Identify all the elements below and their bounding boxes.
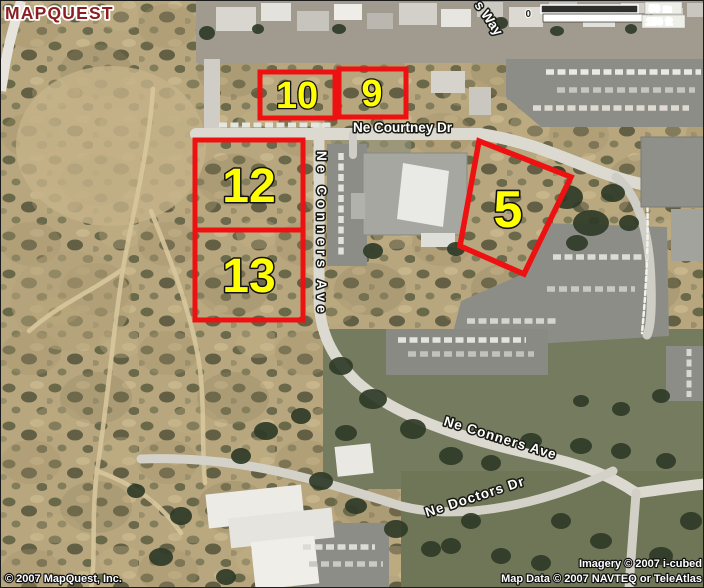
street-label-conners-vertical: Ne Conners Ave — [314, 151, 329, 317]
parcel-9-label: 9 — [361, 73, 382, 115]
mapquest-logo: MAPQUEST — [5, 3, 114, 23]
street-label-courtney: Ne Courtney Dr — [353, 120, 453, 135]
aerial-map-svg: 10 9 12 13 5 Ne Courtney Dr Ne Conners A… — [1, 1, 704, 588]
parcel-12-label: 12 — [222, 160, 275, 213]
parcel-13-label: 13 — [222, 250, 275, 303]
credit-map-data: Map Data © 2007 NAVTEQ or TeleAtlas — [501, 573, 702, 585]
scale-imperial-label: 150 ft — [646, 17, 673, 28]
credit-imagery: Imagery © 2007 i-cubed — [579, 558, 702, 570]
scale-bar-imperial — [543, 14, 647, 22]
scale-metric-label: 50 m — [649, 4, 672, 15]
parcel-5-label: 5 — [494, 181, 523, 239]
map-image[interactable]: 10 9 12 13 5 Ne Courtney Dr Ne Conners A… — [0, 0, 704, 588]
scale-bar-metric — [541, 5, 638, 13]
scale-zero: 0 — [525, 9, 531, 20]
credit-mapquest: © 2007 MapQuest, Inc. — [5, 573, 122, 585]
parcel-10-label: 10 — [276, 75, 318, 117]
